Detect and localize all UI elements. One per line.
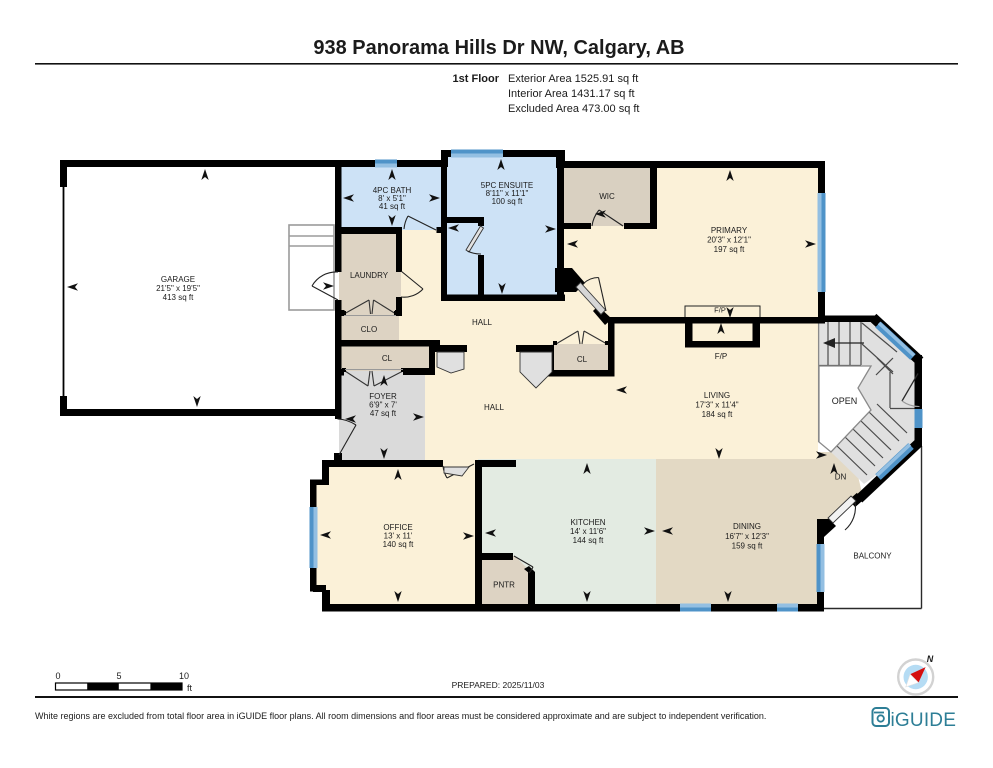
- svg-text:20'3" x 12'1": 20'3" x 12'1": [707, 236, 751, 245]
- svg-text:47 sq ft: 47 sq ft: [370, 409, 397, 418]
- svg-text:iGUIDE: iGUIDE: [891, 710, 957, 731]
- svg-text:14' x 11'6": 14' x 11'6": [570, 527, 606, 536]
- svg-text:N: N: [927, 654, 934, 664]
- svg-text:HALL: HALL: [472, 318, 493, 327]
- svg-text:21'5" x 19'5": 21'5" x 19'5": [156, 284, 200, 293]
- svg-text:CLO: CLO: [361, 325, 377, 334]
- svg-text:CL: CL: [577, 355, 588, 364]
- svg-text:KITCHEN: KITCHEN: [570, 518, 605, 527]
- svg-text:WIC: WIC: [599, 192, 615, 201]
- svg-text:F/P: F/P: [715, 352, 727, 361]
- svg-text:ft: ft: [187, 683, 193, 693]
- svg-text:159 sq ft: 159 sq ft: [732, 542, 763, 551]
- svg-text:F/P: F/P: [714, 306, 726, 315]
- svg-text:938 Panorama Hills Dr NW, Calg: 938 Panorama Hills Dr NW, Calgary, AB: [313, 37, 684, 59]
- svg-text:LAUNDRY: LAUNDRY: [350, 271, 389, 280]
- svg-text:144 sq ft: 144 sq ft: [573, 536, 604, 545]
- svg-text:PREPARED: 2025/11/03: PREPARED: 2025/11/03: [452, 680, 545, 690]
- svg-text:LIVING: LIVING: [704, 391, 730, 400]
- svg-text:Excluded Area 473.00 sq ft: Excluded Area 473.00 sq ft: [508, 103, 639, 115]
- svg-text:OPEN: OPEN: [832, 396, 858, 406]
- svg-text:41 sq ft: 41 sq ft: [379, 202, 406, 211]
- svg-text:GARAGE: GARAGE: [161, 275, 195, 284]
- svg-text:BALCONY: BALCONY: [853, 552, 892, 561]
- svg-text:HALL: HALL: [484, 403, 505, 412]
- svg-text:DN: DN: [835, 473, 847, 482]
- svg-text:140 sq ft: 140 sq ft: [383, 540, 414, 549]
- svg-text:PNTR: PNTR: [493, 581, 515, 590]
- svg-text:197 sq ft: 197 sq ft: [714, 245, 745, 254]
- svg-text:1st Floor: 1st Floor: [453, 73, 500, 85]
- svg-text:Exterior Area 1525.91 sq ft: Exterior Area 1525.91 sq ft: [508, 73, 638, 85]
- svg-text:17'3" x 11'4": 17'3" x 11'4": [695, 401, 738, 410]
- svg-text:10: 10: [179, 671, 189, 681]
- svg-text:DINING: DINING: [733, 522, 761, 531]
- svg-text:100 sq ft: 100 sq ft: [492, 197, 523, 206]
- svg-text:White regions are excluded fro: White regions are excluded from total fl…: [35, 711, 766, 721]
- svg-text:16'7" x 12'3": 16'7" x 12'3": [725, 532, 769, 541]
- svg-text:PRIMARY: PRIMARY: [711, 226, 748, 235]
- svg-text:413 sq ft: 413 sq ft: [163, 293, 194, 302]
- svg-text:0: 0: [55, 671, 60, 681]
- svg-text:184 sq ft: 184 sq ft: [702, 410, 733, 419]
- svg-text:CL: CL: [382, 354, 393, 363]
- svg-text:Interior Area 1431.17 sq ft: Interior Area 1431.17 sq ft: [508, 88, 635, 100]
- svg-text:5: 5: [116, 671, 121, 681]
